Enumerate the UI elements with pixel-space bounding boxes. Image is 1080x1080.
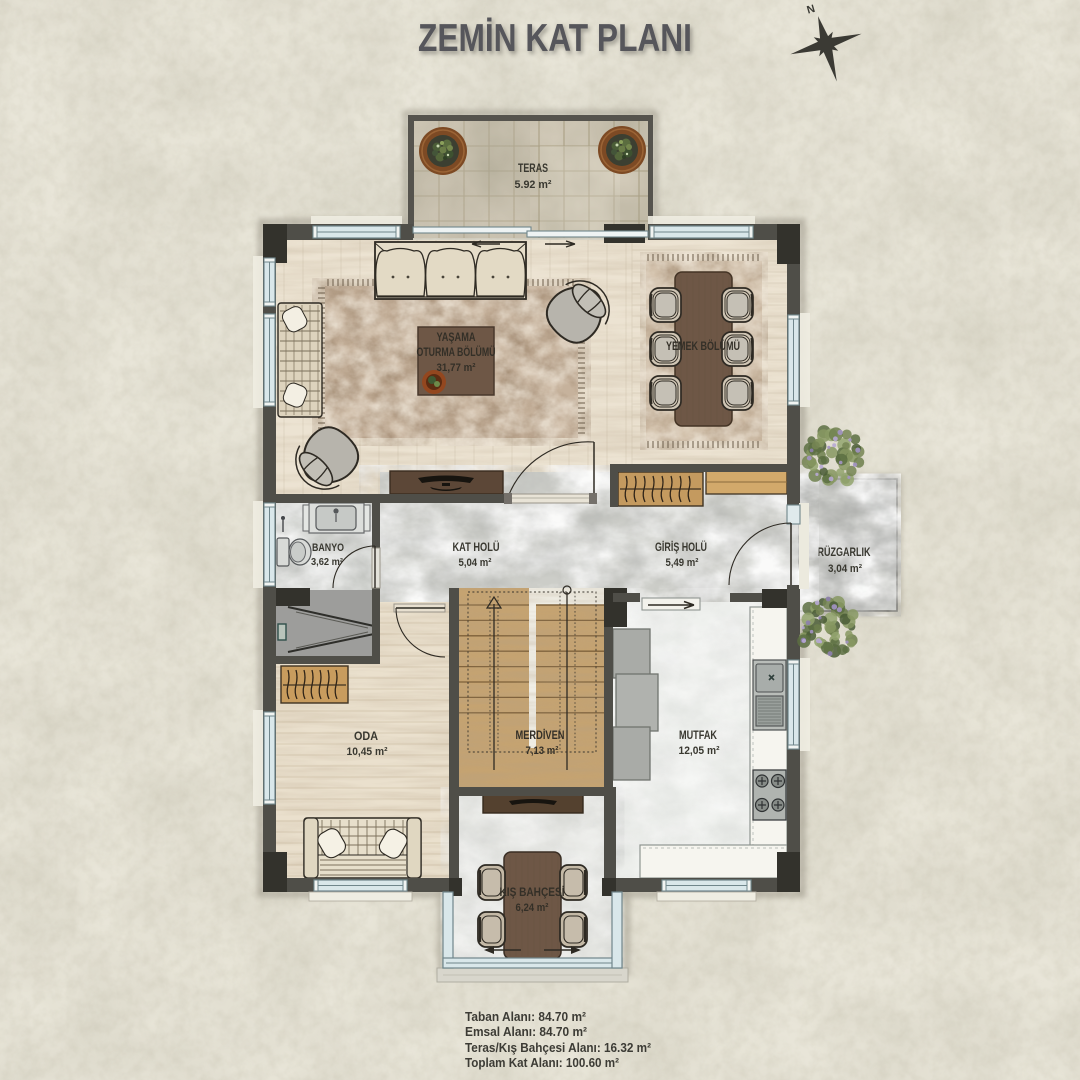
svg-text:YAŞAMA: YAŞAMA <box>437 332 476 344</box>
svg-text:KIŞ BAHÇESİ: KIŞ BAHÇESİ <box>500 886 565 899</box>
svg-text:6,24 m²: 6,24 m² <box>516 902 549 914</box>
svg-text:ODA: ODA <box>354 731 378 743</box>
svg-text:OTURMA BÖLÜMÜ: OTURMA BÖLÜMÜ <box>417 346 496 359</box>
svg-text:YEMEK BÖLÜMÜ: YEMEK BÖLÜMÜ <box>666 340 740 353</box>
svg-text:5.92 m²: 5.92 m² <box>515 179 552 191</box>
svg-text:5,49 m²: 5,49 m² <box>666 557 699 569</box>
svg-text:TERAS: TERAS <box>518 163 548 175</box>
svg-text:BANYO: BANYO <box>312 542 344 554</box>
svg-text:3,04 m²: 3,04 m² <box>828 563 862 575</box>
svg-text:Taban Alanı: 84.70 m²: Taban Alanı: 84.70 m² <box>465 1009 587 1024</box>
svg-text:MUTFAK: MUTFAK <box>679 730 718 742</box>
svg-text:31,77 m²: 31,77 m² <box>437 362 476 374</box>
svg-text:GİRİŞ HOLÜ: GİRİŞ HOLÜ <box>655 541 707 554</box>
svg-text:ZEMİN KAT PLANI: ZEMİN KAT PLANI <box>418 17 692 60</box>
svg-text:7,13 m²: 7,13 m² <box>526 745 559 757</box>
svg-text:MERDİVEN: MERDİVEN <box>516 729 565 742</box>
svg-text:10,45 m²: 10,45 m² <box>347 746 388 758</box>
svg-text:Toplam Kat Alanı: 100.60 m²: Toplam Kat Alanı: 100.60 m² <box>465 1055 620 1070</box>
svg-text:Teras/Kış Bahçesi Alanı: 16.32: Teras/Kış Bahçesi Alanı: 16.32 m² <box>465 1040 652 1055</box>
svg-text:RÜZGARLIK: RÜZGARLIK <box>818 546 872 559</box>
svg-text:5,04 m²: 5,04 m² <box>459 557 492 569</box>
svg-text:KAT HOLÜ: KAT HOLÜ <box>453 541 500 554</box>
svg-text:Emsal Alanı: 84.70 m²: Emsal Alanı: 84.70 m² <box>465 1024 588 1039</box>
svg-text:12,05 m²: 12,05 m² <box>679 745 720 757</box>
